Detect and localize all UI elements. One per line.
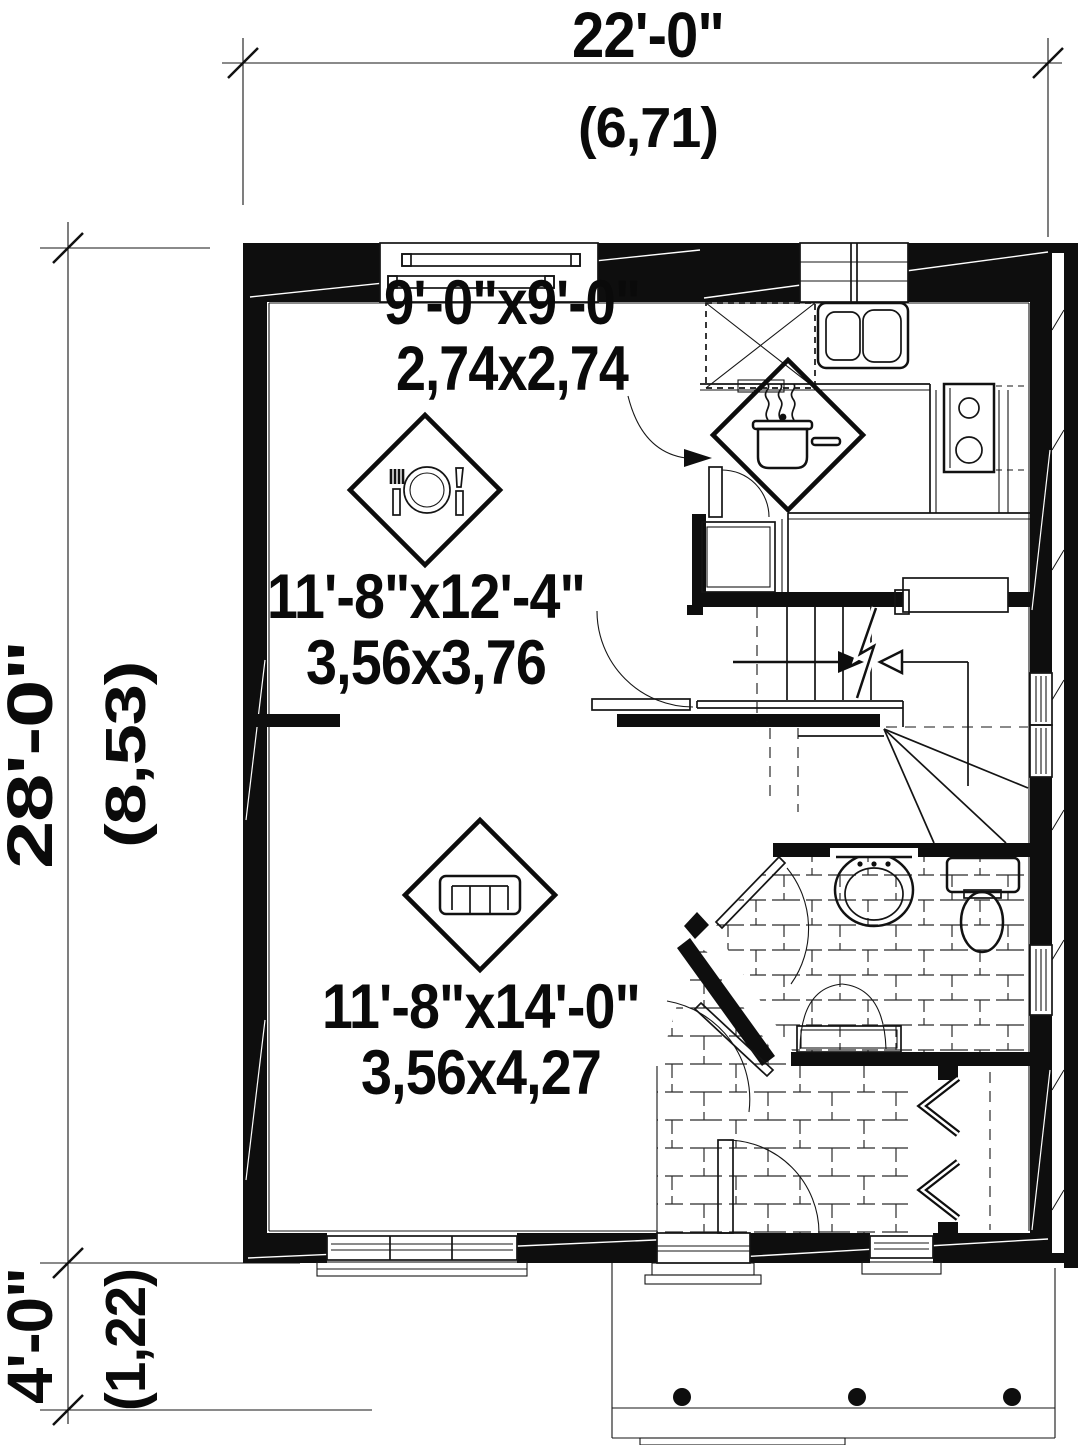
porch-dimension-imperial: 4'-0" [0, 1268, 66, 1404]
bottom-wall-segment [517, 1233, 657, 1263]
marker-diamond [713, 360, 863, 510]
porch-column [848, 1388, 866, 1406]
top-dimension-metric: (6,71) [578, 96, 718, 160]
floor-plan-page: 22'-0" (6,71) 28'-0" (8,53) 4'-0" (1,22)… [0, 0, 1080, 1445]
right-wall-segment [1030, 777, 1052, 945]
door-leaf [709, 467, 722, 517]
door-swing-arc [597, 611, 693, 707]
porch [612, 1263, 1055, 1445]
door-step [645, 1275, 761, 1284]
kitchen-size-metric: 2,74x2,74 [396, 334, 629, 404]
bottom-wall-segment [243, 1233, 327, 1263]
labels: 22'-0" (6,71) 28'-0" (8,53) 4'-0" (1,22)… [0, 0, 724, 1411]
bifold-door-chevron [922, 1078, 958, 1134]
kitchen-sink [818, 303, 908, 368]
tile-area [714, 855, 1029, 1052]
kitchen-door [709, 467, 769, 517]
bottom-wall-segment [750, 1233, 870, 1263]
place-setting-icon [391, 467, 463, 515]
kitchen-south-wall [1008, 592, 1030, 607]
sash-cap [402, 254, 411, 266]
kitchen-marker [713, 360, 863, 510]
right-wall-segment [1030, 1015, 1052, 1263]
wall-cap [1052, 243, 1064, 253]
entry-closet [922, 1072, 990, 1230]
door-hinge-stub [687, 605, 703, 615]
porch-column [673, 1388, 691, 1406]
kitchen-size-imperial: 9'-0"x9'-0" [384, 268, 640, 338]
stove [944, 384, 1028, 472]
living-marker [405, 820, 555, 970]
porch-dimension-metric: (1,22) [94, 1269, 158, 1411]
front-door-opening [657, 1233, 750, 1263]
living-size-metric: 3,56x4,27 [361, 1038, 601, 1108]
living-hall-wall [617, 714, 880, 727]
window-sash [402, 254, 580, 266]
bathroom-window [1030, 945, 1052, 1015]
left-wall [243, 243, 267, 1263]
dining-marker [350, 415, 500, 565]
window-sill [862, 1262, 941, 1274]
kitchen-south-wall [692, 592, 903, 607]
bifold-door-chevron [922, 1162, 958, 1218]
right-wall-veneer [1064, 243, 1078, 1268]
veneer-hatch [1052, 310, 1064, 1210]
stair-down-arrowhead [880, 651, 902, 673]
bathroom-south-wall [791, 1052, 1030, 1066]
door-leaf [592, 699, 690, 710]
closet-jamb [938, 1222, 958, 1236]
left-dimension-metric: (8,53) [94, 662, 158, 848]
sofa-icon [440, 876, 520, 914]
porch-step [640, 1438, 845, 1445]
dining-living-wall-stub [243, 714, 340, 727]
door-jamb-stub [684, 912, 709, 939]
top-dimension-imperial: 22'-0" [572, 0, 724, 71]
stair-landing-window [1030, 673, 1052, 777]
dining-size-metric: 3,56x3,76 [306, 628, 546, 698]
stair-landing-top [895, 578, 1008, 614]
floor-plan-drawing: 22'-0" (6,71) 28'-0" (8,53) 4'-0" (1,22)… [0, 0, 1080, 1445]
porch-column [1003, 1388, 1021, 1406]
kitchen [700, 303, 1030, 614]
marker-diamond [405, 820, 555, 970]
pantry-cabinet [702, 522, 775, 592]
dining-size-imperial: 11'-8"x12'-4" [267, 562, 585, 632]
wall-cap [1052, 1253, 1064, 1263]
hall-dining-door [592, 605, 703, 710]
kitchen-west-stub [692, 514, 706, 607]
bathroom-floor-tiles [714, 855, 1029, 1052]
winder-tread [884, 729, 1006, 843]
sash-cap [571, 254, 580, 266]
left-dimension-imperial: 28'-0" [0, 641, 66, 869]
living-size-imperial: 11'-8"x14'-0" [322, 972, 640, 1042]
marker-diamond [350, 415, 500, 565]
door-step [652, 1263, 754, 1275]
label-leader-arrow [628, 396, 712, 467]
dishwasher [706, 303, 815, 392]
door-swing-arc [722, 470, 769, 517]
